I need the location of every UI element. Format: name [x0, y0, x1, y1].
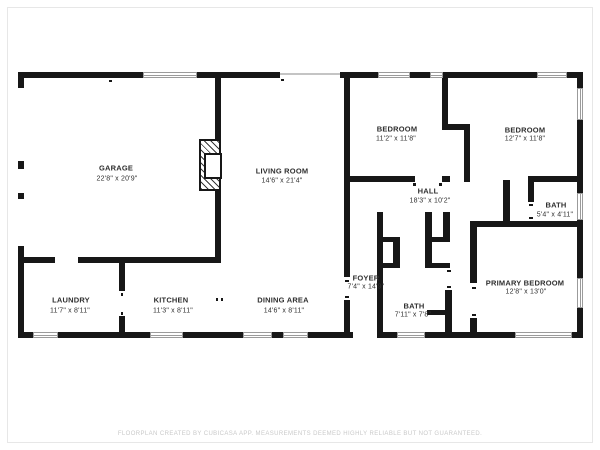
wall	[464, 130, 470, 182]
wall	[119, 263, 125, 291]
door-marker	[447, 270, 451, 272]
room-dims-laundry: 11'7" x 8'11"	[50, 308, 90, 315]
room-label-living-room: LIVING ROOM	[256, 167, 309, 176]
wall	[58, 332, 150, 338]
wall-post	[18, 161, 24, 169]
wall	[18, 72, 143, 78]
wall	[347, 176, 415, 182]
floor-plan-canvas: GARAGE 22'8" x 20'9" LIVING ROOM 14'6" x…	[0, 0, 600, 450]
wall	[78, 257, 221, 263]
wall	[425, 332, 515, 338]
wall	[18, 332, 33, 338]
room-label-bedroom-1: BEDROOM	[377, 125, 418, 134]
room-label-bath-main: BATH	[403, 302, 424, 311]
wall	[503, 180, 510, 227]
wall	[344, 300, 350, 332]
fireplace-box	[204, 153, 222, 179]
door-marker	[472, 314, 476, 316]
window	[397, 332, 425, 338]
window	[243, 332, 272, 338]
window	[283, 332, 308, 338]
door-marker	[109, 80, 112, 82]
wall	[577, 220, 583, 278]
wall	[18, 72, 24, 88]
wall-opening-line	[280, 73, 340, 75]
wall	[577, 72, 583, 88]
wall	[308, 332, 353, 338]
door-marker	[121, 312, 123, 315]
window	[537, 72, 567, 78]
window	[577, 88, 583, 120]
room-dims-garage: 22'8" x 20'9"	[97, 176, 138, 183]
door-marker	[472, 287, 476, 289]
wall-closet	[377, 263, 400, 268]
wall-bedroom-divider	[442, 78, 448, 124]
wall	[443, 72, 537, 78]
room-dims-bedroom-2: 12'7" x 11'8"	[505, 136, 545, 143]
door-marker	[529, 204, 533, 206]
door-marker	[216, 298, 218, 301]
room-dims-hall: 18'3" x 10'2"	[410, 198, 451, 205]
window	[577, 278, 583, 308]
wall	[577, 120, 583, 193]
door-marker	[439, 183, 442, 186]
wall	[197, 72, 280, 78]
door-marker	[413, 183, 416, 186]
room-dims-primary-bedroom: 12'8" x 13'0"	[506, 289, 547, 296]
door-marker	[345, 280, 349, 282]
wall-closet	[425, 263, 450, 268]
door-marker	[281, 79, 284, 81]
door-marker	[221, 298, 223, 301]
room-label-bedroom-2: BEDROOM	[505, 126, 546, 135]
room-label-foyer: FOYER	[353, 274, 380, 283]
room-dims-foyer: 7'4" x 14'9"	[348, 284, 385, 291]
room-label-bath-small: BATH	[545, 201, 566, 210]
door-marker	[121, 293, 123, 296]
room-label-garage: GARAGE	[99, 164, 133, 173]
wall	[470, 221, 578, 227]
room-dims-dining-area: 14'6" x 8'11"	[264, 308, 304, 315]
wall	[470, 227, 477, 283]
room-label-primary-bedroom: PRIMARY BEDROOM	[486, 279, 564, 288]
wall	[119, 316, 125, 332]
wall-post	[18, 193, 24, 199]
watermark-text: FLOORPLAN CREATED BY CUBICASA APP. MEASU…	[118, 431, 482, 437]
room-label-kitchen: KITCHEN	[154, 296, 189, 305]
room-label-hall: HALL	[418, 187, 439, 196]
wall	[410, 72, 430, 78]
wall	[442, 176, 450, 182]
wall-foyer	[377, 212, 383, 332]
room-label-dining-area: DINING AREA	[257, 296, 309, 305]
wall	[377, 332, 397, 338]
room-label-laundry: LAUNDRY	[52, 296, 90, 305]
door-marker	[529, 217, 533, 219]
window	[33, 332, 58, 338]
wall	[528, 176, 578, 182]
window	[515, 332, 572, 338]
window	[150, 332, 183, 338]
room-dims-bath-small: 5'4" x 4'11"	[537, 212, 573, 219]
window	[143, 72, 197, 78]
wall	[577, 308, 583, 338]
wall	[528, 182, 534, 202]
wall	[272, 332, 283, 338]
door-marker	[447, 286, 451, 288]
wall-closet	[425, 237, 450, 242]
door-marker	[345, 296, 349, 298]
room-dims-bedroom-1: 11'2" x 11'8"	[376, 136, 416, 143]
window	[378, 72, 410, 78]
room-dims-living-room: 14'6" x 21'4"	[262, 178, 303, 185]
wall	[183, 332, 243, 338]
room-dims-bath-main: 7'11" x 7'8"	[395, 312, 431, 319]
wall	[470, 318, 477, 332]
wall	[18, 257, 55, 263]
room-dims-kitchen: 11'3" x 8'11"	[153, 308, 193, 315]
window	[577, 193, 583, 220]
